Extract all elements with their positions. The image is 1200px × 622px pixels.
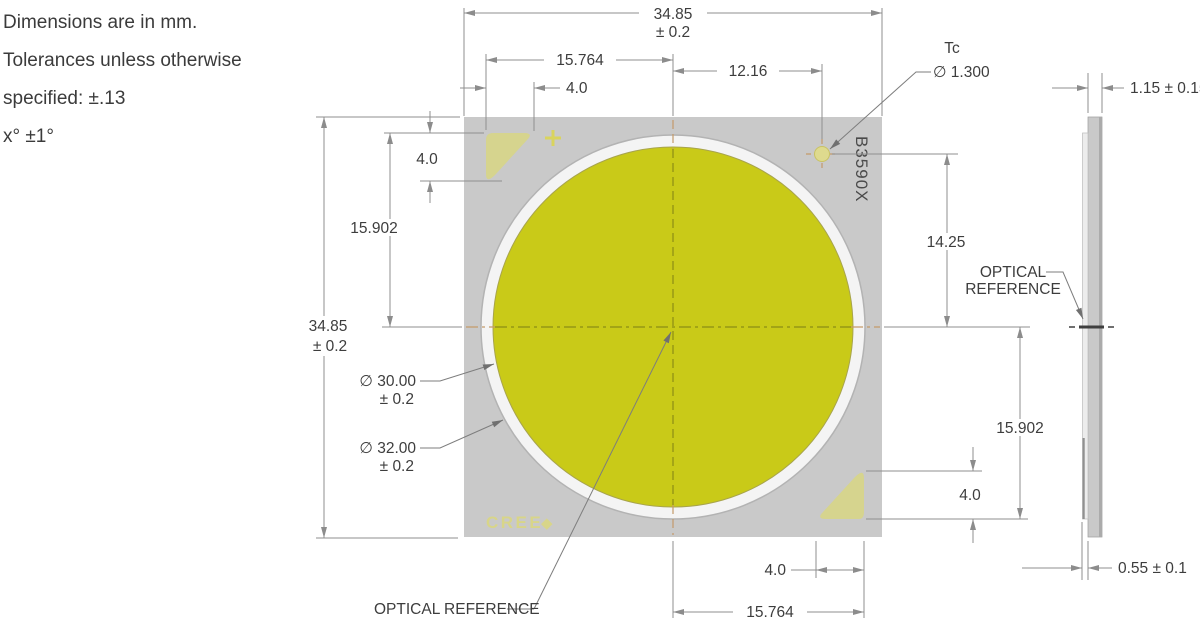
- note-line: specified: ±.13: [3, 80, 242, 118]
- tc-diameter-value: ∅ 1.300: [933, 64, 990, 81]
- dim-side-thickness: 1.15 ± 0.15: [1052, 73, 1200, 113]
- dim-overall-width-value: 34.85: [654, 6, 693, 23]
- dim-overall-width-tol: ± 0.2: [656, 24, 690, 41]
- optical-reference-side-line1: OPTICAL: [980, 264, 1047, 281]
- front-view: B3590X CREE ◆: [464, 117, 1030, 537]
- brand-text: CREE: [486, 513, 543, 532]
- dim-pad-offset-bottom-value: 15.764: [746, 604, 794, 621]
- dim-pad-height-right: 4.0: [866, 447, 982, 543]
- tc-label: Tc: [944, 40, 960, 57]
- note-line: Dimensions are in mm.: [3, 4, 242, 42]
- dim-pad-top-to-center-value: 15.902: [350, 220, 397, 237]
- dim-pad-top-to-center: 15.902: [338, 133, 462, 327]
- dim-pad-offset-bottom: 15.764: [673, 541, 864, 621]
- dim-pad-offset-top-value: 15.764: [556, 52, 604, 69]
- optical-reference-callout-side: OPTICAL REFERENCE: [965, 264, 1083, 319]
- dim-side-thickness-value: 1.15 ± 0.15: [1130, 80, 1200, 97]
- dim-side-ring-height: 0.55 ± 0.1: [1022, 522, 1187, 580]
- side-ring-profile-shade: [1083, 438, 1085, 519]
- dim-tc-to-center-value: 14.25: [927, 234, 966, 251]
- dim-pad-width-bottom: 4.0: [764, 541, 864, 579]
- optical-reference-label-bottom: OPTICAL REFERENCE: [374, 601, 540, 618]
- brand-diamond-icon: ◆: [541, 515, 553, 532]
- dim-center-to-pad-bottom-value: 15.902: [996, 420, 1043, 437]
- ring-diameter-value: ∅ 32.00: [359, 440, 416, 457]
- dim-center-to-tc-value: 12.16: [729, 63, 768, 80]
- dim-pad-height-left-value: 4.0: [416, 151, 438, 168]
- ring-diameter-tol: ± 0.2: [380, 458, 414, 475]
- dim-pad-height-right-value: 4.0: [959, 487, 981, 504]
- les-diameter-value: ∅ 30.00: [359, 373, 416, 390]
- brand-marking: CREE ◆: [486, 513, 553, 532]
- note-line: x° ±1°: [3, 118, 242, 156]
- dim-overall-height-tol: ± 0.2: [313, 338, 347, 355]
- note-line: Tolerances unless otherwise: [3, 42, 242, 80]
- dim-pad-width-bottom-value: 4.0: [764, 562, 786, 579]
- dim-side-ring-height-value: 0.55 ± 0.1: [1118, 560, 1187, 577]
- drawing-canvas: B3590X CREE ◆ 34.85 ±: [0, 0, 1200, 622]
- les-diameter-tol: ± 0.2: [380, 391, 414, 408]
- side-view: [1069, 117, 1114, 537]
- dim-pad-width-top-value: 4.0: [566, 80, 588, 97]
- optical-reference-side-line2: REFERENCE: [965, 281, 1061, 298]
- tolerance-notes: Dimensions are in mm. Tolerances unless …: [3, 4, 242, 156]
- part-number-marking: B3590X: [852, 136, 871, 203]
- dim-overall-height-value: 34.85: [309, 318, 348, 335]
